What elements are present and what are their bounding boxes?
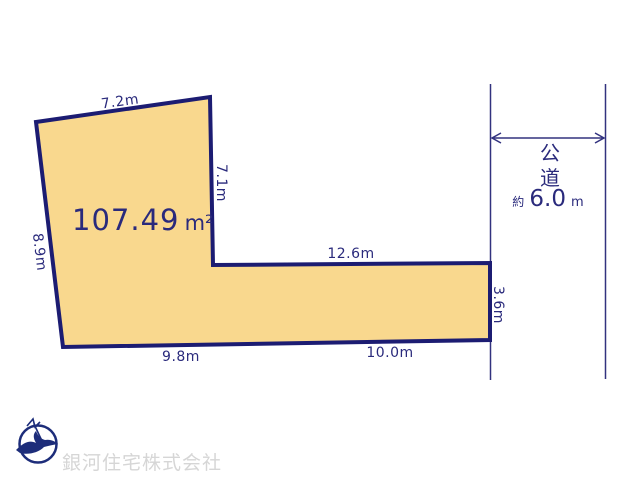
dimension-right-upper-edge: 7.1m [213,164,229,202]
road-width-value: 6.0 [529,186,566,212]
dimension-bottom-left-edge: 9.8m [162,349,200,365]
dimension-inner-top-edge: 12.6m [327,246,374,262]
company-logo [16,419,58,463]
land-plot-diagram: 107.49 m² 7.2m 7.1m 8.9m 12.6m 3.6m 9.8m… [0,0,640,480]
company-name: 銀河住宅株式会社 [62,452,222,474]
area-value: 107.49 [72,203,179,237]
dimension-bottom-right-edge: 10.0m [366,345,413,361]
road-width-unit: m [571,195,584,210]
area-unit: m² [185,211,214,235]
road-width-prefix: 約 [512,194,524,209]
land-plot-diagram-page: 107.49 m² 7.2m 7.1m 8.9m 12.6m 3.6m 9.8m… [0,0,640,480]
dimension-right-lower-edge: 3.6m [490,286,506,324]
road-name-char-1: 公 [540,141,560,165]
dimension-left-edge: 8.9m [29,232,50,272]
road-width-label: 約 6.0 m [512,186,583,212]
